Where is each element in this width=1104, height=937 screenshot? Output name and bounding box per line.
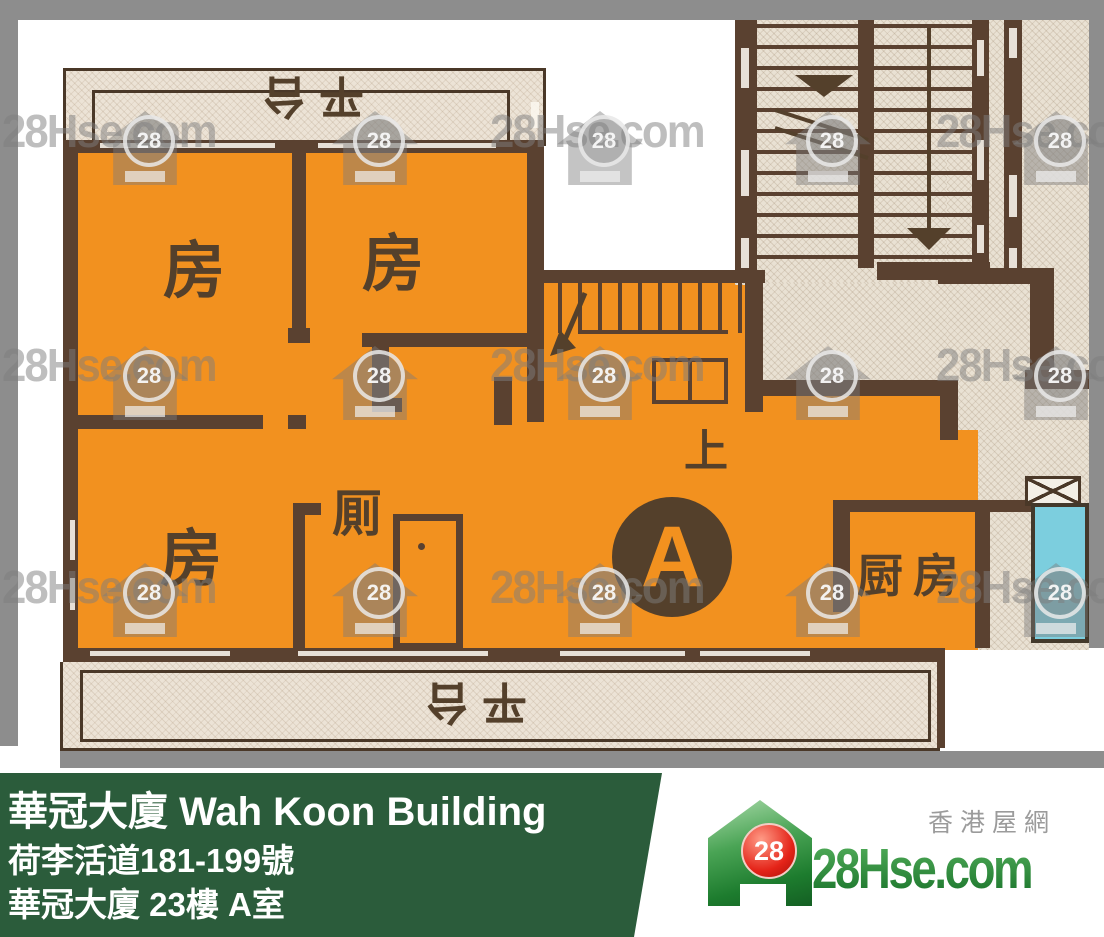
- wall-hall-stub: [372, 347, 389, 402]
- wall-unit-right: [940, 380, 958, 440]
- wall-divider-foot: [288, 328, 310, 343]
- wall-kitchen-right: [975, 512, 990, 648]
- building-title: 華冠大廈 Wah Koon Building: [8, 779, 546, 837]
- wall-toilet-stub: [293, 503, 321, 515]
- window-slit: [977, 40, 984, 76]
- building-unit: 華冠大廈 23樓 A室: [8, 878, 285, 926]
- window-slit: [977, 225, 984, 253]
- window-slit: [741, 150, 749, 196]
- unit-marker: A: [612, 497, 732, 617]
- window-slit: [1009, 175, 1017, 217]
- floorplan-scan: 平台 平台: [0, 0, 1104, 770]
- room2-label: 房: [362, 213, 424, 303]
- wall-unit-top-right: [758, 380, 958, 396]
- stair-flight-right: [874, 24, 972, 264]
- wall-stairs-top: [543, 270, 765, 283]
- wall-kitchen-top: [837, 500, 1035, 512]
- toilet-door-knob: [418, 543, 425, 550]
- wall-room1-bottom: [63, 415, 263, 429]
- wall-toilet-left: [293, 503, 305, 648]
- unit-marker-letter: A: [641, 514, 703, 600]
- water-feature: [1031, 503, 1089, 643]
- window-slit: [560, 651, 685, 656]
- scan-edge-right: [1089, 0, 1104, 648]
- badge-28-icon: 28: [741, 823, 797, 879]
- badge-number: 28: [754, 836, 784, 867]
- window-slit: [741, 238, 749, 268]
- room3-label: 房: [160, 508, 222, 598]
- lobby-overlay: [758, 283, 947, 382]
- terrace-top-label: 平台: [250, 68, 364, 133]
- wall-room2-right: [527, 140, 544, 422]
- stair-flight-left: [757, 24, 858, 264]
- wall-kitchen-left: [833, 500, 850, 612]
- info-bar: 華冠大廈 Wah Koon Building 荷李活道181-199號 華冠大廈…: [0, 773, 1104, 937]
- internal-stair-edge: [578, 330, 728, 334]
- window-slit: [70, 520, 75, 560]
- floorplan-page: 平台 平台: [0, 0, 1104, 937]
- wall-ext-f: [1025, 370, 1089, 389]
- window-slit: [90, 651, 230, 656]
- room1-label: 房: [163, 220, 225, 310]
- open-area-edge: [937, 648, 945, 748]
- blank-gap: [543, 20, 735, 283]
- house-icon: [708, 800, 812, 906]
- scan-edge-bottom: [60, 751, 1104, 768]
- wall-entry-jamb: [494, 377, 512, 425]
- scan-edge-left: [0, 0, 18, 746]
- wall-room-divider: [292, 140, 306, 343]
- internal-stair-lower: [652, 358, 728, 404]
- internal-stair-lower-line: [688, 362, 692, 400]
- window-slit: [700, 651, 810, 656]
- site-tagline: 香港屋網: [928, 803, 1056, 839]
- building-address: 荷李活道181-199號: [8, 834, 294, 882]
- stairs-up-label: 上: [684, 415, 728, 479]
- window-slit: [1009, 248, 1017, 268]
- lift-shaft-symbol: [1025, 476, 1081, 506]
- internal-stair-treads: [558, 283, 745, 333]
- scan-edge-top: [0, 0, 1104, 20]
- window-slit: [298, 651, 488, 656]
- site-name: 28Hse.com: [812, 836, 1031, 902]
- toilet-door: [393, 514, 463, 650]
- window-slit: [1009, 28, 1017, 58]
- window-slit: [741, 48, 749, 88]
- window-slit: [531, 102, 539, 128]
- toilet-label: 厠: [332, 474, 382, 546]
- wall-ext-e: [1030, 268, 1054, 380]
- window-slit: [100, 143, 275, 148]
- wall-hall-top: [362, 333, 543, 347]
- open-area-bottom-right: [944, 650, 1089, 751]
- house-door-icon: [740, 884, 786, 906]
- kitchen-label: 厨房: [857, 540, 969, 606]
- window-slit: [977, 140, 984, 180]
- wall-stair-stringer: [858, 20, 874, 268]
- wall-hall-stub-foot: [372, 398, 402, 412]
- window-slit: [70, 578, 75, 610]
- wall-room1-door-jamb: [288, 415, 306, 429]
- terrace-bottom-label: 平台: [413, 674, 527, 739]
- window-slit: [318, 143, 496, 148]
